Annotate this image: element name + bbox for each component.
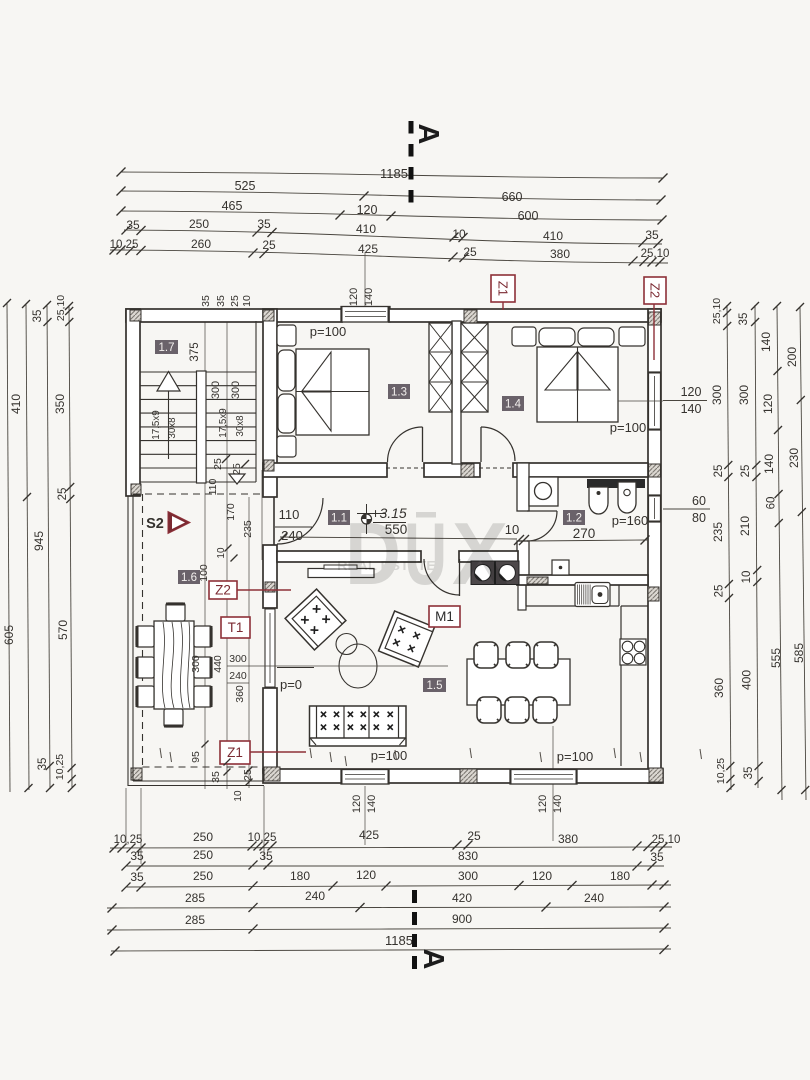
svg-text:200: 200 <box>785 347 799 367</box>
svg-text:230: 230 <box>787 448 801 468</box>
svg-text:250: 250 <box>193 830 213 844</box>
svg-text:10,25: 10,25 <box>110 239 139 251</box>
svg-text:80: 80 <box>692 511 706 525</box>
svg-text:60: 60 <box>692 494 706 508</box>
svg-text:25: 25 <box>713 465 725 478</box>
svg-text:300: 300 <box>737 385 751 405</box>
svg-text:1.5: 1.5 <box>427 680 443 692</box>
svg-text:350: 350 <box>53 394 67 414</box>
svg-text:420: 420 <box>452 891 472 905</box>
svg-text:525: 525 <box>235 179 256 193</box>
svg-text:250: 250 <box>189 217 209 231</box>
svg-text:S2: S2 <box>146 516 164 532</box>
svg-text:10: 10 <box>216 547 227 559</box>
svg-text:1185: 1185 <box>385 933 413 948</box>
svg-text:25: 25 <box>57 488 69 501</box>
svg-text:1.6: 1.6 <box>181 572 197 584</box>
svg-text:250: 250 <box>193 869 213 883</box>
svg-text:25: 25 <box>714 585 726 598</box>
svg-text:25: 25 <box>231 463 243 475</box>
svg-text:25,10: 25,10 <box>55 295 67 321</box>
svg-text:25: 25 <box>212 458 224 470</box>
svg-text:p=0: p=0 <box>280 677 302 692</box>
svg-text:p=100: p=100 <box>557 749 594 764</box>
svg-text:A: A <box>417 949 449 970</box>
svg-text:900: 900 <box>452 912 472 926</box>
svg-text:Z1: Z1 <box>227 745 243 760</box>
svg-text:p=100: p=100 <box>371 748 408 763</box>
svg-text:270: 270 <box>573 526 596 541</box>
svg-text:140: 140 <box>363 288 375 306</box>
svg-text:110: 110 <box>207 478 219 495</box>
svg-text:600: 600 <box>518 209 539 223</box>
svg-text:10: 10 <box>741 571 753 584</box>
svg-text:300: 300 <box>458 869 478 883</box>
svg-text:250: 250 <box>193 848 213 862</box>
svg-text:10: 10 <box>241 295 253 307</box>
svg-text:D: D <box>345 504 401 603</box>
svg-text:35: 35 <box>130 849 144 863</box>
svg-text:120: 120 <box>761 394 775 414</box>
svg-text:35: 35 <box>126 218 140 232</box>
svg-text:425: 425 <box>358 242 378 256</box>
svg-text:830: 830 <box>458 849 478 863</box>
svg-text:140: 140 <box>681 402 702 416</box>
svg-text:660: 660 <box>502 190 523 204</box>
svg-text:585: 585 <box>792 643 806 663</box>
svg-text:25,10: 25,10 <box>711 298 723 324</box>
svg-text:1.3: 1.3 <box>391 387 407 399</box>
svg-text:35: 35 <box>259 849 273 863</box>
svg-text:10: 10 <box>452 227 466 241</box>
svg-text:p=100: p=100 <box>610 420 647 435</box>
svg-text:170: 170 <box>225 503 237 521</box>
svg-text:100: 100 <box>198 564 210 582</box>
svg-text:p=160: p=160 <box>612 513 649 528</box>
svg-text:p=100: p=100 <box>310 324 347 339</box>
svg-text:25: 25 <box>229 295 241 307</box>
svg-text:120: 120 <box>681 385 702 399</box>
svg-text:25,10: 25,10 <box>652 834 681 846</box>
svg-text:35: 35 <box>743 767 755 780</box>
svg-text:120: 120 <box>348 288 360 306</box>
svg-text:35: 35 <box>645 228 659 242</box>
svg-text:A: A <box>412 124 444 145</box>
svg-text:35: 35 <box>257 217 271 231</box>
svg-text:605: 605 <box>2 625 16 645</box>
svg-text:1.2: 1.2 <box>566 513 582 525</box>
svg-text:240: 240 <box>584 891 604 905</box>
svg-text:360: 360 <box>712 678 726 698</box>
svg-text:260: 260 <box>191 237 211 251</box>
svg-text:17,5x9: 17,5x9 <box>151 410 162 439</box>
svg-text:Z2: Z2 <box>648 283 663 298</box>
svg-text:300: 300 <box>230 381 242 399</box>
svg-text:U: U <box>404 504 447 603</box>
svg-text:35: 35 <box>210 771 222 783</box>
svg-text:570: 570 <box>56 620 70 640</box>
svg-text:10: 10 <box>233 790 244 802</box>
svg-text:10,25: 10,25 <box>715 758 727 784</box>
svg-text:375: 375 <box>189 342 201 361</box>
svg-text:120: 120 <box>357 203 378 217</box>
svg-text:555: 555 <box>769 648 783 668</box>
svg-text:465: 465 <box>222 199 243 213</box>
svg-text:35: 35 <box>32 310 44 323</box>
svg-text:140: 140 <box>552 795 564 813</box>
svg-text:410: 410 <box>9 394 23 414</box>
svg-text:10,25: 10,25 <box>54 754 66 780</box>
svg-text:X: X <box>452 504 508 603</box>
svg-text:35: 35 <box>130 870 144 884</box>
svg-text:285: 285 <box>185 891 205 905</box>
svg-text:945: 945 <box>32 531 46 551</box>
svg-text:210: 210 <box>738 516 752 536</box>
svg-text:120: 120 <box>356 868 376 882</box>
svg-text:REAL ESTATE: REAL ESTATE <box>337 558 436 573</box>
svg-text:380: 380 <box>550 247 570 261</box>
svg-text:T1: T1 <box>228 620 244 635</box>
svg-text:180: 180 <box>290 869 310 883</box>
svg-text:Z2: Z2 <box>215 583 231 598</box>
svg-text:1.4: 1.4 <box>505 399 522 411</box>
svg-text:17,5x9: 17,5x9 <box>218 408 229 437</box>
svg-text:10,25: 10,25 <box>114 834 143 846</box>
svg-text:140: 140 <box>762 454 776 474</box>
svg-text:140: 140 <box>366 795 378 813</box>
svg-text:410: 410 <box>543 229 563 243</box>
svg-text:30x8: 30x8 <box>167 417 178 439</box>
svg-text:410: 410 <box>356 222 376 236</box>
svg-text:1185: 1185 <box>380 166 408 181</box>
svg-text:300: 300 <box>229 653 247 665</box>
svg-text:25: 25 <box>467 829 481 843</box>
svg-text:35: 35 <box>738 313 750 326</box>
svg-text:180: 180 <box>610 869 630 883</box>
svg-text:285: 285 <box>185 913 205 927</box>
svg-text:235: 235 <box>242 520 254 538</box>
svg-text:25,10: 25,10 <box>641 248 670 260</box>
svg-text:140: 140 <box>759 332 773 352</box>
svg-text:35: 35 <box>37 758 49 771</box>
svg-text:10,25: 10,25 <box>248 832 277 844</box>
svg-text:360: 360 <box>234 685 246 703</box>
svg-text:240: 240 <box>229 670 247 682</box>
svg-text:235: 235 <box>711 522 725 542</box>
svg-text:1.7: 1.7 <box>159 342 175 354</box>
svg-text:110: 110 <box>279 507 300 522</box>
svg-text:440: 440 <box>212 655 224 673</box>
svg-text:25: 25 <box>463 245 477 259</box>
svg-text:300: 300 <box>210 381 222 399</box>
svg-text:120: 120 <box>537 795 549 813</box>
svg-text:25: 25 <box>740 465 752 478</box>
svg-text:35: 35 <box>650 850 664 864</box>
svg-text:120: 120 <box>532 869 552 883</box>
svg-text:95: 95 <box>190 751 202 763</box>
svg-text:120: 120 <box>351 795 363 813</box>
svg-text:300: 300 <box>190 655 202 673</box>
svg-text:300: 300 <box>710 385 724 405</box>
svg-text:60: 60 <box>766 497 778 510</box>
svg-text:400: 400 <box>740 670 754 690</box>
svg-text:25: 25 <box>262 238 276 252</box>
svg-text:425: 425 <box>359 828 379 842</box>
svg-text:35: 35 <box>215 295 227 307</box>
svg-text:M1: M1 <box>435 609 454 624</box>
svg-text:Z1: Z1 <box>496 281 511 296</box>
svg-text:35: 35 <box>200 295 212 307</box>
svg-text:30x8: 30x8 <box>235 415 246 437</box>
svg-text:380: 380 <box>558 832 578 846</box>
svg-text:240: 240 <box>305 889 325 903</box>
